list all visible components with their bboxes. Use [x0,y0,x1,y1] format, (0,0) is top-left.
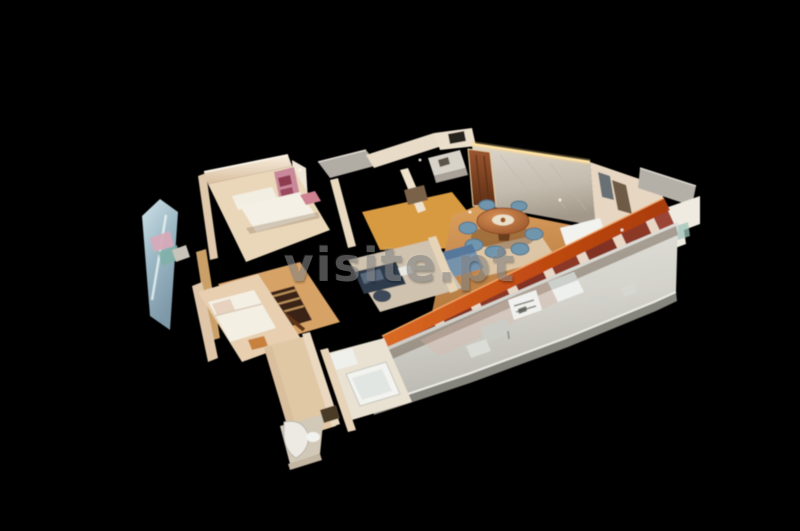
dollhouse-model [0,0,800,531]
dining-chair [459,222,477,234]
table-center-dot [501,218,506,223]
office-chair [373,290,391,302]
highlight-speck [299,169,302,172]
small-table [591,296,609,305]
tour-viewport[interactable]: visite.pt [0,0,800,531]
toilet [306,432,320,442]
dining-chair [511,243,529,255]
highlight-speck [559,199,562,202]
dining-chair [525,228,543,240]
highlight-speck [469,211,472,214]
highlight-speck [419,159,422,162]
highlight-speck [621,229,624,232]
table-leg [508,331,509,339]
dining-chair [479,200,495,210]
dining-chair [485,246,505,258]
